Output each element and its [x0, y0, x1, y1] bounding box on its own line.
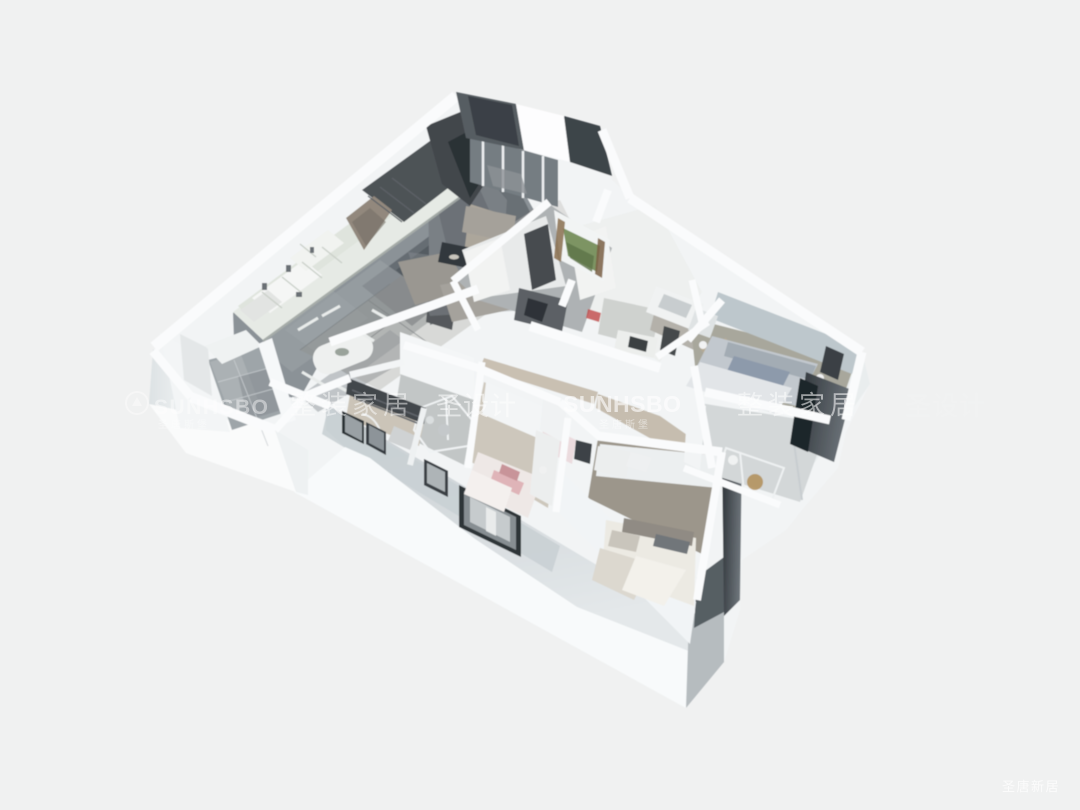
svg-text:圣唐斯堡: 圣唐斯堡	[158, 418, 210, 431]
svg-text:SUNHSBO: SUNHSBO	[154, 396, 270, 419]
svg-text:整装家居: 整装家居	[737, 390, 861, 420]
svg-text:圣设计: 圣设计	[436, 391, 517, 421]
svg-text:圣设计: 圣设计	[905, 391, 986, 421]
svg-text:整装家居: 整装家居	[290, 390, 414, 420]
svg-text:SUNHSBO: SUNHSBO	[563, 391, 682, 417]
svg-text:圣唐斯堡: 圣唐斯堡	[599, 418, 651, 431]
svg-text:圣唐新居: 圣唐新居	[1002, 779, 1060, 794]
